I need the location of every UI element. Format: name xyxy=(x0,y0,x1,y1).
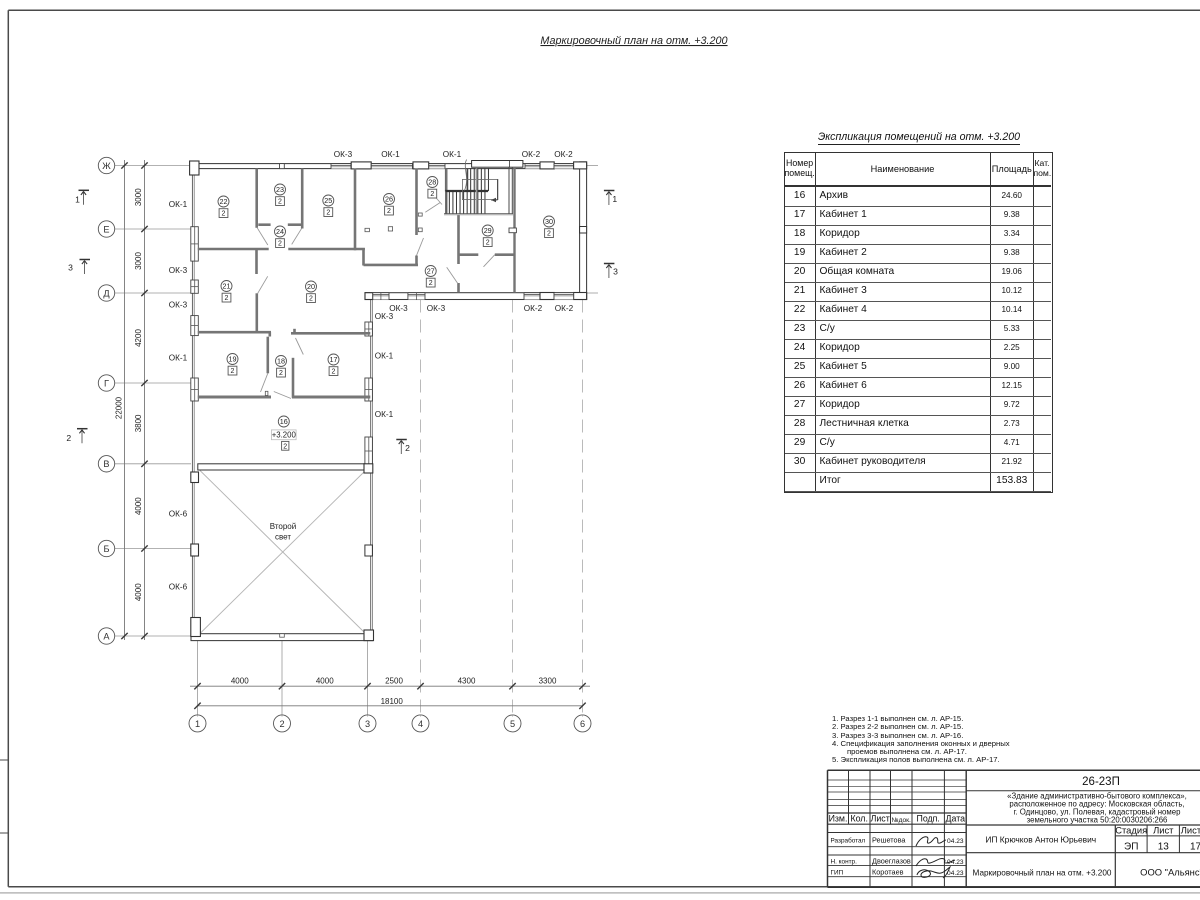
svg-text:+3.200: +3.200 xyxy=(272,431,297,440)
svg-text:ОК-1: ОК-1 xyxy=(169,354,188,363)
svg-text:Лист: Лист xyxy=(871,814,890,824)
svg-text:Двоеглазов: Двоеглазов xyxy=(872,857,911,866)
svg-text:ОК-3: ОК-3 xyxy=(169,266,188,275)
svg-text:Г: Г xyxy=(104,378,109,388)
svg-text:Изм.: Изм. xyxy=(829,814,848,824)
svg-text:3300: 3300 xyxy=(539,677,557,686)
svg-text:18: 18 xyxy=(277,357,285,366)
svg-text:2: 2 xyxy=(547,231,551,238)
svg-text:Дата: Дата xyxy=(946,814,966,824)
svg-text:2: 2 xyxy=(225,295,229,302)
svg-text:1: 1 xyxy=(195,719,200,729)
svg-text:13: 13 xyxy=(1158,842,1170,853)
svg-text:4000: 4000 xyxy=(134,497,143,515)
svg-text:ОК-3: ОК-3 xyxy=(169,301,188,310)
svg-text:земельного участка 50:20:00302: земельного участка 50:20:0030206:266 xyxy=(1027,815,1168,824)
svg-text:2: 2 xyxy=(66,433,71,443)
svg-text:ОК-6: ОК-6 xyxy=(169,510,188,519)
svg-text:30: 30 xyxy=(545,217,553,226)
svg-text:ОК-3: ОК-3 xyxy=(375,312,394,321)
svg-text:3000: 3000 xyxy=(134,188,143,206)
svg-text:Маркировочный план на отм. +3.: Маркировочный план на отм. +3.200 xyxy=(540,35,727,47)
svg-text:26-23П: 26-23П xyxy=(1082,776,1120,788)
svg-text:2: 2 xyxy=(279,370,283,377)
svg-text:Е: Е xyxy=(103,224,109,234)
svg-text:2500: 2500 xyxy=(385,677,403,686)
svg-text:2: 2 xyxy=(309,296,313,303)
svg-text:3800: 3800 xyxy=(134,414,143,432)
svg-text:3000: 3000 xyxy=(134,252,143,270)
svg-text:ОК-1: ОК-1 xyxy=(381,150,400,159)
svg-text:Подп.: Подп. xyxy=(917,814,940,824)
svg-text:ОК-3: ОК-3 xyxy=(427,304,446,313)
svg-text:3: 3 xyxy=(68,263,73,273)
svg-text:18100: 18100 xyxy=(381,697,404,706)
svg-text:Д: Д xyxy=(103,288,110,298)
svg-text:2: 2 xyxy=(387,208,391,215)
svg-text:4000: 4000 xyxy=(231,677,249,686)
svg-text:2: 2 xyxy=(405,443,410,453)
svg-text:ОК-2: ОК-2 xyxy=(554,150,573,159)
svg-text:2: 2 xyxy=(222,211,226,218)
svg-text:ИП Крючков Антон Юрьевич: ИП Крючков Антон Юрьевич xyxy=(985,835,1096,845)
svg-text:3: 3 xyxy=(613,267,618,277)
svg-text:26: 26 xyxy=(385,195,393,204)
svg-text:Лист: Лист xyxy=(1153,825,1174,836)
svg-text:2: 2 xyxy=(283,443,287,450)
svg-text:В: В xyxy=(103,459,109,469)
svg-text:ОК-1: ОК-1 xyxy=(443,150,462,159)
svg-text:ГИП: ГИП xyxy=(831,870,844,877)
svg-text:23: 23 xyxy=(276,185,284,194)
svg-text:20: 20 xyxy=(307,282,315,291)
svg-text:2: 2 xyxy=(486,240,490,247)
svg-text:21: 21 xyxy=(223,282,231,291)
svg-text:2: 2 xyxy=(332,369,336,376)
svg-text:Стадия: Стадия xyxy=(1115,825,1147,836)
svg-text:№док.: №док. xyxy=(892,817,911,824)
svg-text:ОК-3: ОК-3 xyxy=(334,150,353,159)
svg-text:ОК-2: ОК-2 xyxy=(555,304,574,313)
svg-text:2: 2 xyxy=(278,241,282,248)
svg-text:Маркировочный план на отм. +3.: Маркировочный план на отм. +3.200 xyxy=(973,869,1112,878)
svg-text:ООО "Альянс": ООО "Альянс" xyxy=(1140,867,1200,878)
svg-text:Решетова: Решетова xyxy=(872,836,906,845)
svg-text:ОК-6: ОК-6 xyxy=(169,583,188,592)
svg-text:1: 1 xyxy=(612,194,617,204)
svg-text:17: 17 xyxy=(1190,842,1200,853)
svg-text:Разработал: Разработал xyxy=(831,837,866,845)
svg-text:Кол.: Кол. xyxy=(850,814,867,824)
svg-text:А: А xyxy=(103,631,110,641)
svg-text:4200: 4200 xyxy=(134,329,143,347)
svg-text:28: 28 xyxy=(428,178,436,187)
svg-text:22: 22 xyxy=(220,197,228,206)
svg-text:17: 17 xyxy=(330,355,338,364)
svg-text:4: 4 xyxy=(418,719,423,729)
svg-text:ОК-2: ОК-2 xyxy=(522,150,541,159)
svg-text:25: 25 xyxy=(324,196,332,205)
svg-text:4300: 4300 xyxy=(458,677,476,686)
svg-text:29: 29 xyxy=(484,226,492,235)
svg-text:Коротаев: Коротаев xyxy=(872,868,904,877)
svg-text:04.23: 04.23 xyxy=(947,870,964,877)
svg-text:22000: 22000 xyxy=(115,396,124,419)
svg-text:2: 2 xyxy=(231,368,235,375)
svg-text:2: 2 xyxy=(279,719,284,729)
svg-text:2: 2 xyxy=(429,280,433,287)
svg-text:Второй: Второй xyxy=(270,522,296,531)
svg-text:4000: 4000 xyxy=(134,583,143,601)
svg-text:04.23: 04.23 xyxy=(947,838,964,845)
svg-text:Б: Б xyxy=(103,544,109,554)
svg-text:4000: 4000 xyxy=(316,677,334,686)
svg-text:19: 19 xyxy=(229,355,237,364)
svg-text:2: 2 xyxy=(430,191,434,198)
svg-text:Н. контр.: Н. контр. xyxy=(831,859,858,866)
svg-text:5: 5 xyxy=(510,719,515,729)
svg-text:ОК-2: ОК-2 xyxy=(524,304,543,313)
svg-text:ОК-1: ОК-1 xyxy=(375,352,394,361)
svg-text:2: 2 xyxy=(278,199,282,206)
svg-text:ОК-1: ОК-1 xyxy=(375,410,394,419)
svg-text:Листов: Листов xyxy=(1181,825,1200,836)
svg-text:свет: свет xyxy=(275,533,291,542)
svg-text:6: 6 xyxy=(580,719,585,729)
svg-text:27: 27 xyxy=(427,267,435,276)
svg-text:24: 24 xyxy=(276,227,284,236)
svg-text:ОК-1: ОК-1 xyxy=(169,200,188,209)
svg-text:3: 3 xyxy=(365,719,370,729)
svg-text:2: 2 xyxy=(326,210,330,217)
svg-text:16: 16 xyxy=(280,417,288,426)
svg-text:ЭП: ЭП xyxy=(1124,842,1138,853)
svg-text:Ж: Ж xyxy=(102,161,111,171)
svg-text:1: 1 xyxy=(75,195,80,205)
